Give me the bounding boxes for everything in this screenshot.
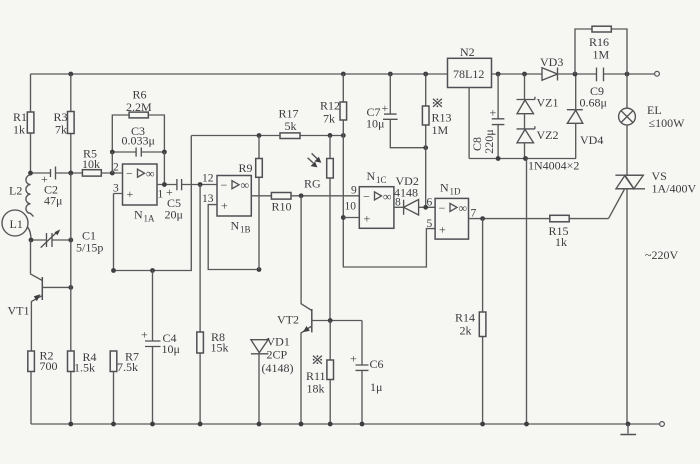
svg-text:2CP: 2CP [267,348,288,362]
svg-text:VZ2: VZ2 [537,128,559,142]
svg-text:13: 13 [202,193,214,205]
svg-text:15k: 15k [211,341,229,355]
svg-text:+: + [221,199,228,213]
svg-text:∞: ∞ [459,201,468,215]
svg-text:1A: 1A [144,214,156,224]
svg-text:1M: 1M [593,48,610,62]
svg-text:47μ: 47μ [44,194,62,208]
svg-text:0.033μ: 0.033μ [122,134,155,148]
svg-text:L1: L1 [10,217,23,231]
svg-text:1: 1 [158,189,164,201]
svg-text:9: 9 [351,185,357,197]
svg-text:220μ: 220μ [482,129,496,153]
svg-text:2.2M: 2.2M [126,100,152,114]
svg-text:1k: 1k [13,123,25,137]
svg-text:1μ: 1μ [370,380,382,394]
svg-text:1.5k: 1.5k [74,361,95,375]
svg-text:78L12: 78L12 [453,67,484,81]
svg-text:−: − [126,167,133,181]
svg-text:700: 700 [40,359,58,373]
svg-text:~220V: ~220V [645,248,678,262]
svg-text:1B: 1B [240,225,251,235]
svg-text:N: N [134,208,143,222]
svg-text:2k: 2k [460,324,472,338]
svg-text:R10: R10 [272,200,292,214]
svg-text:18k: 18k [307,382,325,396]
svg-text:VT2: VT2 [277,313,299,327]
svg-text:7k: 7k [55,123,67,137]
svg-text:R14: R14 [455,311,475,325]
svg-text:≤100W: ≤100W [649,116,686,130]
svg-text:7.5k: 7.5k [117,360,138,374]
svg-text:N: N [440,181,449,195]
svg-text:R9: R9 [239,161,253,175]
svg-text:8: 8 [395,197,401,209]
svg-text:EL: EL [647,103,662,117]
svg-text:L2: L2 [9,184,22,198]
svg-text:10μ: 10μ [366,117,384,131]
svg-text:VD3: VD3 [540,55,563,69]
svg-text:10μ: 10μ [162,342,180,356]
svg-text:10: 10 [345,201,357,213]
svg-text:5k: 5k [285,119,297,133]
svg-text:3: 3 [113,183,119,195]
svg-text:−: − [439,201,446,215]
svg-text:1M: 1M [432,123,449,137]
svg-text:N2: N2 [460,45,475,59]
svg-text:12: 12 [202,173,214,185]
svg-text:5/15p: 5/15p [76,241,103,255]
svg-text:1N4004×2: 1N4004×2 [528,159,579,173]
svg-text:1D: 1D [450,187,462,197]
svg-text:∞: ∞ [383,189,392,203]
svg-text:R12: R12 [320,99,340,113]
svg-text:+: + [382,101,389,115]
svg-text:1C: 1C [376,175,387,185]
svg-text:N: N [231,219,240,233]
svg-text:(4148): (4148) [262,361,294,375]
svg-text:+: + [490,106,497,120]
svg-text:10k: 10k [82,157,100,171]
svg-text:C6: C6 [370,357,384,371]
svg-text:+: + [127,187,134,201]
svg-text:1A/400V: 1A/400V [652,182,697,196]
svg-text:VZ1: VZ1 [537,96,559,110]
svg-text:7k: 7k [323,112,335,126]
svg-text:RG: RG [304,177,321,191]
svg-text:+: + [364,212,371,226]
svg-text:VD4: VD4 [580,133,603,147]
svg-text:2: 2 [113,162,119,174]
svg-text:VT1: VT1 [8,304,30,318]
svg-text:0.68μ: 0.68μ [580,96,607,110]
svg-text:+: + [141,328,148,342]
svg-text:5: 5 [427,218,433,230]
svg-text:1k: 1k [555,235,567,249]
svg-text:N: N [367,169,376,183]
svg-text:+: + [350,352,357,366]
svg-text:−: − [363,189,370,203]
svg-text:∞: ∞ [241,178,250,192]
svg-text:+: + [439,223,446,237]
svg-text:20μ: 20μ [165,208,183,222]
svg-text:∞: ∞ [146,167,155,181]
svg-text:7: 7 [471,208,477,220]
svg-text:VD1: VD1 [267,335,290,349]
svg-text:6: 6 [427,197,433,209]
svg-text:−: − [221,178,228,192]
